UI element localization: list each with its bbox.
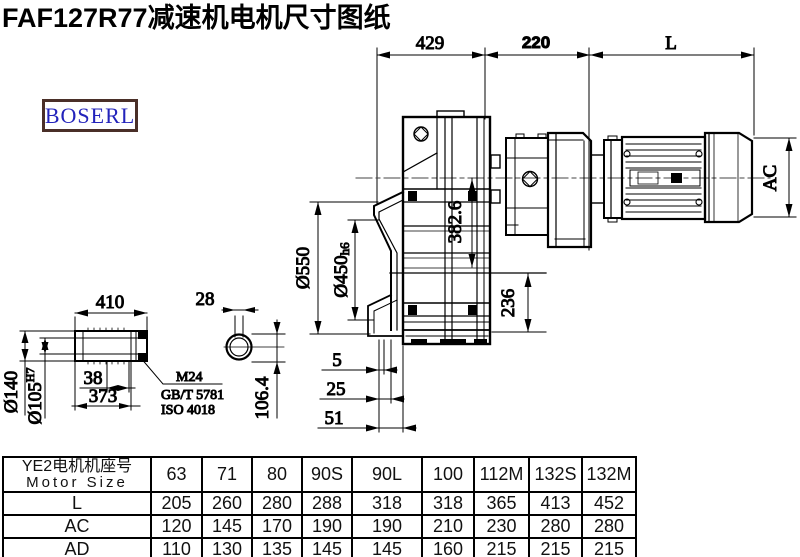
- column-header-80: 80: [252, 457, 302, 492]
- shaft-detail-view: [75, 313, 147, 364]
- dim-51-label: 51: [325, 408, 344, 429]
- table-cell: 260: [202, 492, 252, 515]
- table-cell: 145: [302, 538, 352, 557]
- r77-gear-unit: [491, 133, 591, 247]
- column-header-90L: 90L: [352, 457, 422, 492]
- table-cell: 318: [422, 492, 474, 515]
- table-row-L: L205260280288318318365413452: [3, 492, 636, 515]
- table-cell: 215: [582, 538, 636, 557]
- table-cell: 280: [252, 492, 302, 515]
- gearbox-flange-bracket: [368, 192, 403, 336]
- dim-236-label: 236: [498, 289, 519, 318]
- dim-3826-label: 382.6: [445, 201, 466, 244]
- page: FAF127R77减速机电机尺寸图纸 BOSERL 429 220: [0, 0, 800, 557]
- column-header-63: 63: [151, 457, 202, 492]
- column-header-132M: 132M: [582, 457, 636, 492]
- table-cell: 365: [474, 492, 529, 515]
- table-cell: 170: [252, 515, 302, 538]
- dim-105-label: Ø105H7: [23, 368, 46, 425]
- table-cell: 210: [422, 515, 474, 538]
- dim-25-label: 25: [327, 379, 346, 400]
- row-label: AC: [3, 515, 151, 538]
- table-cell: 205: [151, 492, 202, 515]
- dim-1064-label: 106.4: [252, 376, 273, 419]
- dim-AC-label: AC: [760, 165, 781, 191]
- shaft-section-view: [222, 310, 284, 360]
- table-cell: 318: [352, 492, 422, 515]
- table-row-AC: AC120145170190190210230280280: [3, 515, 636, 538]
- dim-429-label: 429: [416, 33, 445, 54]
- table-cell: 190: [302, 515, 352, 538]
- table-cell: 215: [474, 538, 529, 557]
- column-header-132S: 132S: [529, 457, 582, 492]
- dim-5-label: 5: [332, 350, 342, 371]
- table-cell: 230: [474, 515, 529, 538]
- dim-450-label: Ø450h6: [331, 242, 352, 298]
- table-cell: 190: [352, 515, 422, 538]
- table-row-AD: AD110130135145145160215215215: [3, 538, 636, 557]
- dim-550-label: Ø550: [293, 247, 314, 289]
- table-cell: 160: [422, 538, 474, 557]
- dim-L-label: L: [665, 33, 677, 54]
- table-cell: 413: [529, 492, 582, 515]
- shaft-diameter-arrows: [22, 331, 49, 361]
- table-cell: 288: [302, 492, 352, 515]
- column-header-90S: 90S: [302, 457, 352, 492]
- column-header-112M: 112M: [474, 457, 529, 492]
- table-cell: 452: [582, 492, 636, 515]
- table-cell: 145: [202, 515, 252, 538]
- table-cell: 130: [202, 538, 252, 557]
- dim-28-label: 28: [196, 289, 215, 310]
- table-cell: 280: [582, 515, 636, 538]
- row-label: L: [3, 492, 151, 515]
- dim-220-label: 220: [522, 33, 550, 52]
- column-header-100: 100: [422, 457, 474, 492]
- dim-410-label: 410: [96, 292, 125, 313]
- table-cell: 110: [151, 538, 202, 557]
- column-header-71: 71: [202, 457, 252, 492]
- note-iso: ISO 4018: [161, 403, 215, 418]
- table-cell: 145: [352, 538, 422, 557]
- motor-size-table: YE2电机机座号Motor Size63718090S90L100112M132…: [2, 456, 637, 557]
- note-gbt: GB/T 5781: [161, 388, 224, 403]
- table-cell: 215: [529, 538, 582, 557]
- row-label: AD: [3, 538, 151, 557]
- table-cell: 280: [529, 515, 582, 538]
- dim-373-label: 373: [89, 386, 118, 407]
- note-m24: M24: [176, 370, 202, 385]
- motor-size-header: YE2电机机座号Motor Size: [3, 457, 151, 492]
- table-cell: 120: [151, 515, 202, 538]
- dim-140-label: Ø140: [1, 371, 22, 413]
- table-cell: 135: [252, 538, 302, 557]
